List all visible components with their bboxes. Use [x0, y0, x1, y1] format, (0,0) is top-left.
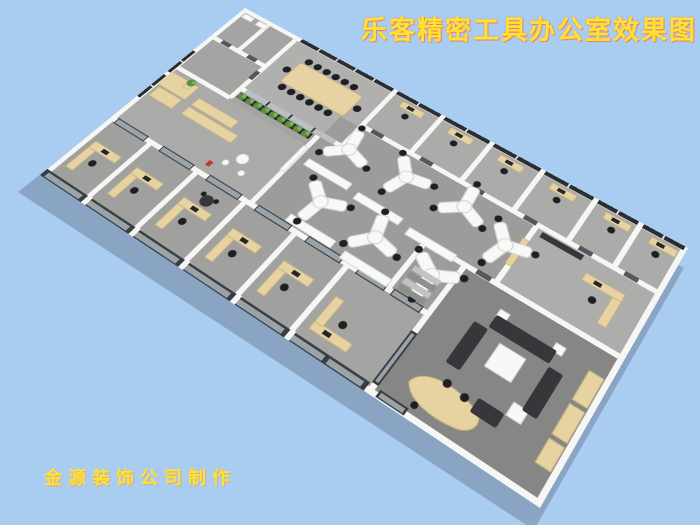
- render-canvas: 乐客精密工具办公室效果图 金源装饰公司制作: [0, 0, 700, 525]
- render-title: 乐客精密工具办公室效果图: [361, 10, 697, 47]
- company-watermark: 金源装饰公司制作: [44, 464, 236, 490]
